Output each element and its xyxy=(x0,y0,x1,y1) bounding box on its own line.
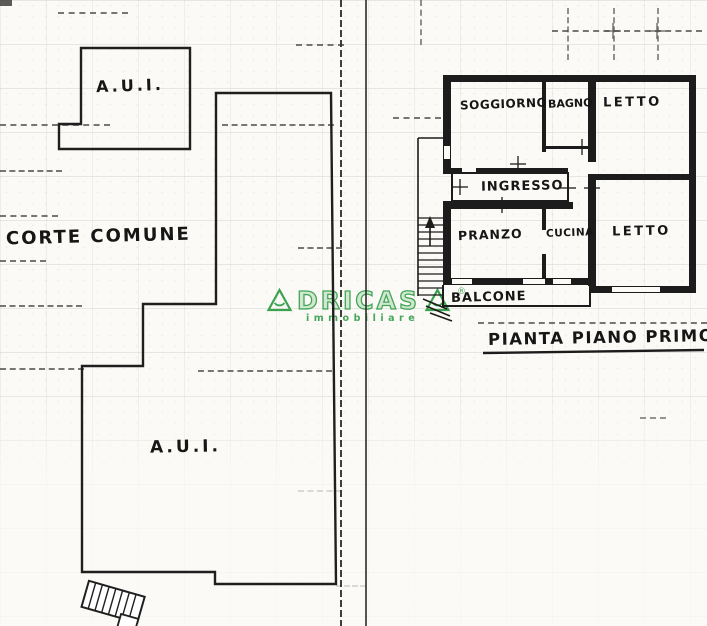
wall-openings xyxy=(444,146,660,292)
label-main-parcel: A.U.I. xyxy=(150,436,221,457)
boundary-strip-lines xyxy=(341,0,366,626)
label-room-balcone: BALCONE xyxy=(451,289,527,306)
label-room-letto-top: LETTO xyxy=(603,94,662,110)
label-room-cucina: CUCINA xyxy=(546,226,594,240)
scanned-cadastral-plan: DRICAS ® immobiliare xyxy=(0,0,707,626)
label-room-pranzo: PRANZO xyxy=(458,226,523,243)
label-room-bagno: BAGNO xyxy=(548,96,593,111)
title-underline xyxy=(483,350,704,353)
site-stairs xyxy=(79,581,145,626)
main-parcel-outline xyxy=(82,93,336,584)
label-upper-parcel: A.U.I. xyxy=(96,75,164,96)
label-room-letto-bottom: LETTO xyxy=(612,223,671,239)
scan-cross-artifacts xyxy=(605,23,665,39)
label-room-ingresso: INGRESSO xyxy=(481,178,564,194)
plan-title: PIANTA PIANO PRIMO xyxy=(488,326,707,349)
upper-parcel-outline xyxy=(59,48,190,149)
